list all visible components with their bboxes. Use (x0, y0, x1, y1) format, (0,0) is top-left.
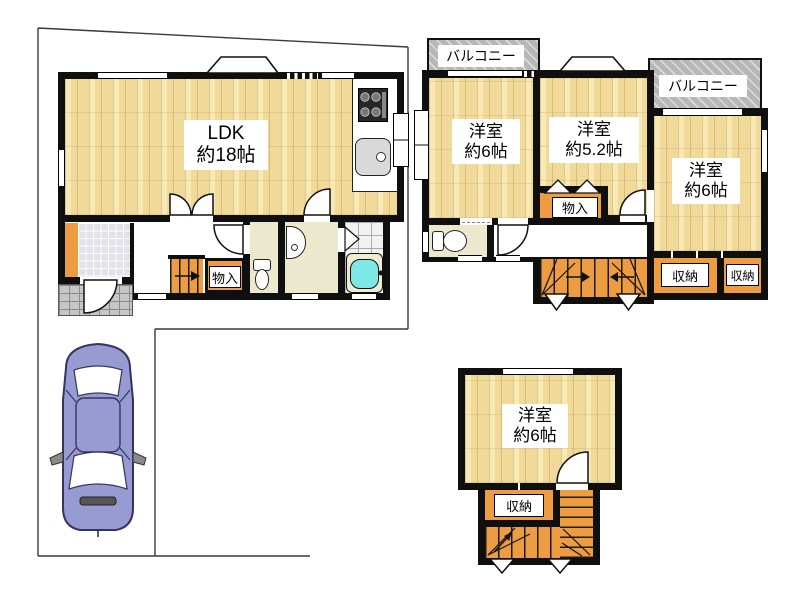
kitchen-stove (358, 88, 388, 122)
room-label-3f-name: 洋室 (518, 406, 552, 426)
car-grille (80, 497, 116, 505)
ldk-double-door-opening (170, 215, 213, 222)
balcony-2-label-text: バルコニー (668, 78, 738, 94)
room2f-left-sliding-door (460, 218, 492, 225)
ldk-top-louver (287, 73, 318, 79)
room-label-2f-left-size: 約6帖 (464, 142, 507, 162)
room-label-ldk-size: 約18帖 (196, 145, 255, 167)
room2f-left-door-opening (498, 218, 528, 225)
car-windshield (69, 452, 127, 489)
room-label-2f-right-name: 洋室 (689, 161, 723, 181)
bay-window-1f (207, 57, 278, 73)
closet-2f-label-text: 物入 (562, 198, 588, 217)
storage-2f-1-label: 収納 (661, 263, 709, 287)
hall-2f-south-window (496, 255, 520, 262)
toilet-2f-bowl (443, 230, 467, 252)
bathroom-south-window (352, 293, 376, 300)
closet-1f-label-text: 物入 (212, 268, 238, 287)
car (50, 344, 146, 537)
floor-plan-canvas: 物入 LDK 約18帖 物入 (0, 0, 798, 598)
genkan-tile (78, 223, 130, 277)
storage-2f-2-label: 収納 (726, 264, 759, 286)
kitchen-faucet (376, 152, 386, 162)
kitchen-top-window (322, 72, 354, 79)
sliding-door-dash (462, 222, 490, 223)
car-mirror-right (133, 452, 146, 465)
closet-1f-label: 物入 (209, 266, 241, 288)
toilet-1f-door-opening (243, 225, 250, 254)
toilet-1f-bowl (255, 269, 269, 290)
room-label-2f-middle-name: 洋室 (577, 120, 611, 140)
storage-2f-1-label-text: 収納 (672, 266, 698, 285)
entrance-door-opening (80, 277, 122, 284)
bathroom-door-opening (338, 228, 345, 252)
stairs-1f (170, 259, 203, 293)
room-label-ldk-name: LDK (208, 123, 245, 145)
stairs-3f-upper-run (560, 490, 593, 558)
storage-2f-tick1 (671, 251, 673, 258)
room3f-top-window (503, 368, 573, 375)
room-label-2f-middle-size: 約5.2帖 (565, 140, 623, 160)
room-label-3f: 洋室 約6帖 (502, 404, 568, 448)
storage-3f-label-text: 収納 (506, 496, 532, 515)
storage-2f-tick2 (696, 251, 698, 258)
balcony-2-label: バルコニー (659, 75, 747, 97)
ldk-top-window (98, 72, 167, 79)
floor2-hall-floor (494, 225, 647, 257)
storage-3f-tick (518, 483, 520, 490)
toilet-2f-west-window (422, 232, 429, 252)
room2f-right-door-opening (647, 190, 654, 222)
room-label-2f-right-size: 約6帖 (684, 181, 727, 201)
entrance-porch (58, 284, 133, 316)
toilet-2f-south-window (458, 255, 482, 262)
stairs-3f-lower-run (485, 527, 560, 558)
car-roof (76, 398, 120, 452)
closet-2f-label: 物入 (552, 197, 598, 218)
room-label-2f-left-name: 洋室 (469, 122, 503, 142)
stairs-2f (540, 259, 647, 297)
room-label-2f-middle: 洋室 約5.2帖 (549, 117, 639, 163)
room2f-right-top-window (663, 108, 742, 116)
room-label-2f-left: 洋室 約6帖 (452, 119, 520, 164)
kitchen-east-window-box (393, 113, 409, 167)
ldk-west-window (58, 150, 65, 186)
ldk-south-wall (65, 215, 397, 222)
room2f-left-top-window (448, 70, 522, 77)
hall-south-window (138, 293, 166, 300)
car-rear-window (74, 366, 122, 396)
ldk-washroom-door-opening (304, 215, 330, 222)
washroom-south-window (292, 293, 318, 300)
balcony-1-label: バルコニー (438, 45, 524, 67)
toilet-1f-east-wall (278, 222, 285, 293)
storage-3f-label: 収納 (494, 494, 544, 517)
bay-window-2f (560, 57, 625, 71)
storage-2f-2-label-text: 収納 (730, 267, 754, 284)
room2f-left-window-box (414, 110, 429, 180)
storage-2f-tick3 (721, 251, 723, 258)
car-mirror-left (50, 452, 63, 465)
washroom-vanity-drain (291, 244, 298, 251)
room2f-middle-door-opening (620, 215, 645, 222)
room-label-3f-size: 約6帖 (513, 426, 556, 446)
room-label-2f-right: 洋室 約6帖 (672, 158, 740, 204)
room2f-right-east-window (761, 130, 768, 172)
balcony-1-label-text: バルコニー (446, 48, 516, 64)
room3f-door-opening (556, 483, 588, 490)
bathtub (350, 259, 379, 289)
room2f-top-louver (524, 71, 534, 77)
room-label-ldk: LDK 約18帖 (184, 120, 268, 170)
genkan-hall-step (65, 223, 78, 277)
